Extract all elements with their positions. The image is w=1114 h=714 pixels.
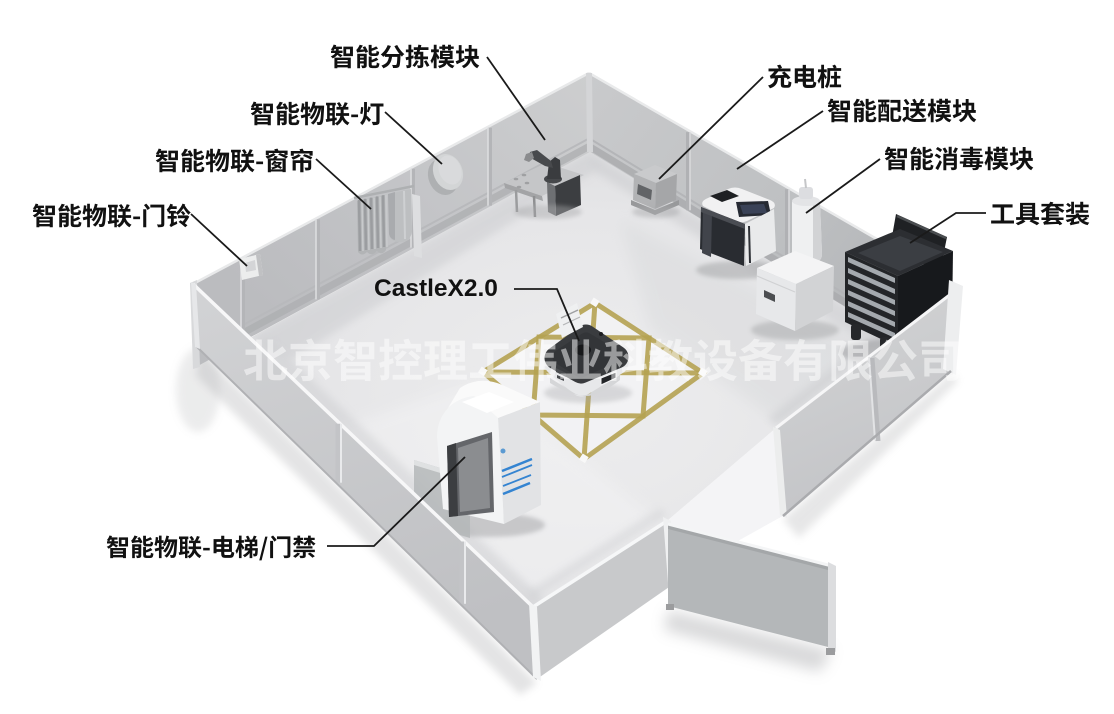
- svg-text:CastleX2.0: CastleX2.0: [374, 275, 498, 302]
